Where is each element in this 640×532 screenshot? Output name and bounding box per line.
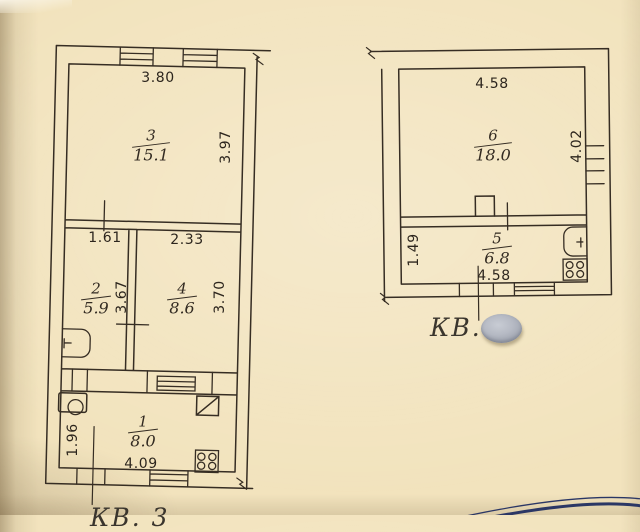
dim-label-room5-bottom: 4.58 (477, 268, 511, 284)
window-icon (110, 47, 218, 487)
stove-4-burner-icon (563, 259, 587, 280)
room-label-4: 4 8.6 (167, 282, 197, 317)
sink-icon (62, 329, 91, 358)
apartment-caption-right: КВ. (430, 313, 482, 342)
room-label-1: 1 8.0 (128, 415, 158, 450)
dim-label-room6-right: 4.02 (569, 129, 585, 163)
window-icon (513, 146, 606, 296)
apartment-caption-left: КВ. 3 (90, 503, 170, 532)
room-area: 8.6 (167, 301, 197, 317)
dim-label-room4-right: 3.70 (212, 280, 228, 314)
stamp-edge-icon (466, 497, 640, 515)
stove-4-burner-icon (195, 450, 219, 473)
dim-label-room1-bottom: 4.09 (124, 456, 158, 472)
leader-line (92, 427, 94, 505)
room-area: 18.0 (474, 148, 512, 164)
dim-label-room6-top: 4.58 (475, 76, 509, 92)
dim-label-room2-top: 1.61 (88, 230, 122, 246)
room-area: 6.8 (482, 251, 512, 267)
room-label-6: 6 18.0 (474, 129, 512, 164)
room-label-3: 3 15.1 (132, 129, 170, 164)
sink-icon (564, 227, 587, 256)
wall-break-mark (366, 47, 388, 304)
vent-shaft-icon (196, 396, 218, 416)
dim-label-room3-top: 3.80 (141, 70, 175, 86)
sticker-over-apartment-number (481, 314, 522, 343)
room-area: 5.9 (81, 301, 111, 317)
plan-linework (0, 0, 640, 515)
room-label-2: 2 5.9 (81, 282, 111, 317)
dim-label-room2-right: 3.67 (114, 280, 130, 314)
dim-label-room3-right: 3.97 (218, 130, 234, 164)
room-area: 8.0 (128, 434, 158, 450)
dim-label-room1-left: 1.96 (65, 423, 81, 457)
room-label-5: 5 6.8 (482, 232, 512, 267)
room-area: 15.1 (132, 148, 170, 164)
chimney-icon (475, 196, 494, 216)
dim-label-room4-top: 2.33 (170, 232, 204, 248)
dim-label-room5-left: 1.49 (406, 233, 422, 267)
